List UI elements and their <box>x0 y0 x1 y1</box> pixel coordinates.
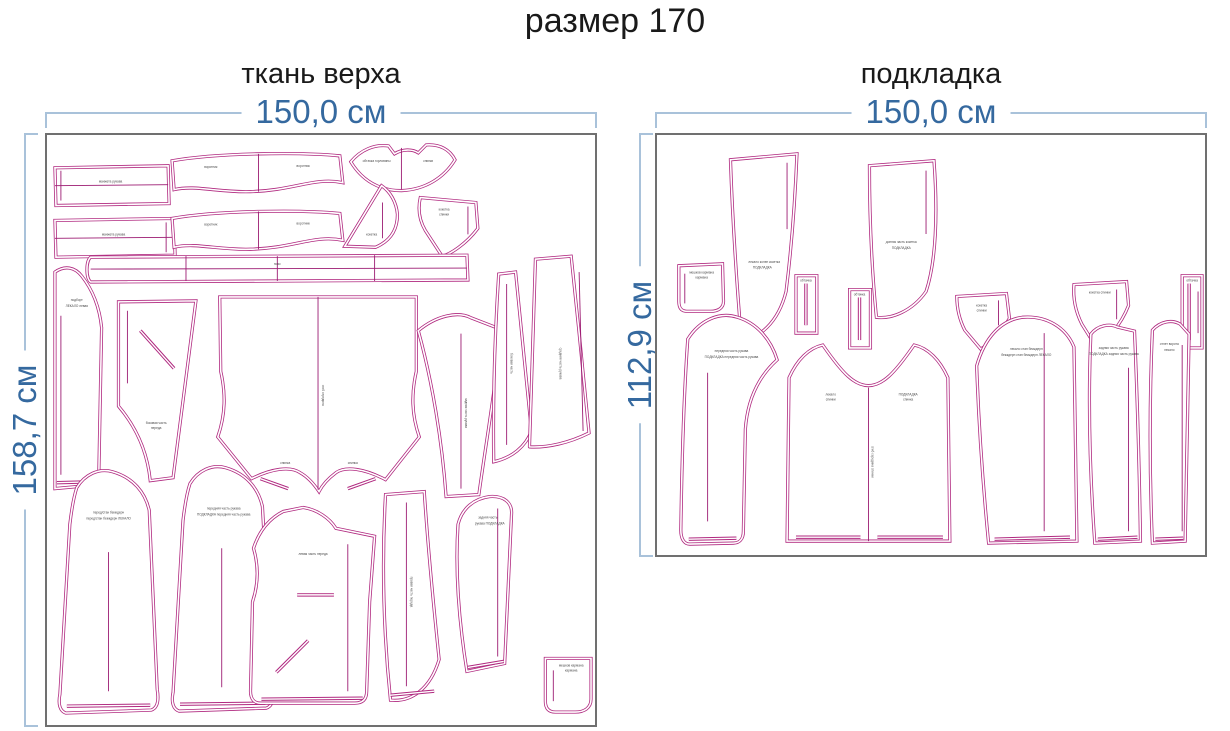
fabric-height-dim-tick-top <box>24 133 38 135</box>
front-left-panel-outline <box>251 507 375 703</box>
hood-gusset-piece: кокетка <box>345 186 398 248</box>
back-body-label: спинка <box>348 461 358 465</box>
pocket-piece-label: мешков кармана <box>689 271 714 275</box>
front-facing-label: подборт <box>71 298 83 302</box>
fabric-caption: ткань верха <box>45 58 597 91</box>
lining-height-label: 112,9 см <box>621 267 659 424</box>
sleeve-front-left-piece: перед/стан бекждернперед/стан бекждерн Л… <box>59 471 158 713</box>
pocket-bag-label: мешков кармана <box>559 663 584 667</box>
front-right-panel-piece: правая часть переда <box>384 492 440 701</box>
waistband-label: пояс <box>274 262 281 266</box>
layout-sheet: размер 170 ткань верха 150,0 см 158,7 см… <box>0 0 1230 731</box>
sleeve-front-lining-label: передняя часть рукава <box>715 349 749 353</box>
lining-width-label: 150,0 см <box>852 93 1011 131</box>
pocket-piece-piece: мешков карманакармана <box>679 264 724 312</box>
pocket-bag-label: кармана <box>565 668 578 672</box>
back-lining-label: сгиб середина спинки <box>870 446 874 478</box>
side-front-label: боковая часть <box>146 421 167 425</box>
front-facing-label: ЛЕКАЛО левая <box>66 304 89 308</box>
pocket-bag-piece: мешков карманакармана <box>545 658 591 712</box>
collar-outer-label: воротник <box>297 164 311 168</box>
side-lining-outline <box>1150 322 1189 544</box>
pocket-welt-1-label: обтачка <box>800 279 812 283</box>
front-lining-label: лекало стан бекждерн <box>1010 347 1043 351</box>
collar-inner-label: воротник <box>204 222 218 226</box>
back-yoke-small-label: кокетка <box>976 303 987 307</box>
front-lining-piece: лекало стан бекждернбекждерн стан бекжде… <box>977 317 1077 543</box>
back-yoke-shield-outline <box>419 198 478 257</box>
collar-inner-label: воротник <box>297 221 311 225</box>
back-yoke-shield-label: спинки <box>439 212 449 216</box>
back-lining-label: ПОДКЛАДКА <box>899 393 919 397</box>
lining-width-dim-tick-right <box>1205 112 1207 128</box>
fabric-height-dim-tick-bottom <box>24 725 38 727</box>
front-yoke-left-label: лекало колен кокетка <box>748 260 780 264</box>
lining-panel: мешков карманакарманалекало колен кокетк… <box>655 133 1207 557</box>
front-right-panel-label: правая часть переда <box>409 577 413 608</box>
front-yoke-right-label: донник часть кокетка <box>886 240 917 244</box>
sleeve-back-lining-label: задняя часть <box>478 515 498 519</box>
front-yoke-left-piece: лекало колен кокеткаПОДКЛАДКА <box>730 154 797 340</box>
side-lining-welt-core <box>1155 538 1183 539</box>
sleeve-middle-piece: средняя часть рукава <box>529 256 589 447</box>
side-lining-label: отлет ворота <box>1160 342 1179 346</box>
pocket-welt-2-label: обтачка <box>854 292 866 296</box>
sleeve-back-lining-label: ПОДКЛАДКА задняя часть рукава <box>1089 352 1139 356</box>
sleeve-back-lining-label: задняя часть рукава <box>1099 346 1129 350</box>
sleeve-front-left-welt-core <box>67 705 150 706</box>
sleeve-front-right-welt-core <box>180 703 265 704</box>
pocket-welt-1-piece: обтачка <box>796 276 817 333</box>
back-body-label: спинка <box>280 461 290 465</box>
back-lining-label: спинки <box>826 397 836 401</box>
sleeve-front-left-label: перед/стан бекждерн <box>93 510 124 514</box>
fabric-width-dim-tick-right <box>595 112 597 128</box>
fabric-panel: манжета рукаваманжета рукававоротникворо… <box>45 133 597 727</box>
back-body-welt-core <box>348 479 376 489</box>
front-yoke-right-piece: донник часть кокеткаПОДКЛАДКА <box>869 161 935 318</box>
front-left-panel-piece: левая часть переда <box>251 507 375 703</box>
side-front-piece: боковая частьпереда <box>118 301 195 481</box>
back-lining-piece: лекалоспинкиПОДКЛАДКАспинкасгиб середина… <box>787 345 950 541</box>
sleeve-front-lining-label: ПОДКЛАДКА передняя часть рукава <box>705 355 759 359</box>
sleeve-front-lining-welt-core <box>689 538 737 539</box>
side-panel-label: боковая часть <box>510 353 514 374</box>
pocket-welt-3-label: обтачка <box>1186 279 1198 283</box>
sleeve-middle-label: средняя часть рукава <box>558 348 562 380</box>
cuff-strip-1-label: манжета рукава <box>99 180 123 184</box>
back-lining-label: лекало <box>826 393 837 397</box>
back-yoke-shield-label: кокетка спинки <box>1089 290 1111 294</box>
front-lining-outline <box>977 317 1077 543</box>
side-lining-label: лекало <box>1164 348 1175 352</box>
collar-outer-piece: воротникворотник <box>172 154 343 192</box>
fabric-width-dim-tick-left <box>45 112 47 128</box>
fabric-layout-svg: манжета рукаваманжета рукававоротникворо… <box>47 135 595 725</box>
neck-facing-label: обтачка горловины <box>363 159 392 163</box>
sleeve-back-lining-piece: задняя частьрукава ПОДКЛАДКА <box>457 496 512 671</box>
sleeve-front-right-label: ПОДКЛАДКА передняя часть рукава <box>197 512 251 516</box>
sleeve-back-lining-piece: задняя часть рукаваПОДКЛАДКА задняя част… <box>1089 325 1141 543</box>
cuff-strip-2-piece: манжета рукава <box>55 218 175 257</box>
waistband-piece: пояс <box>87 255 468 282</box>
side-lining-piece: отлет вороталекало <box>1150 322 1189 544</box>
back-yoke-shield-label: кокетка <box>439 207 450 211</box>
back-body-welt-core <box>260 479 288 489</box>
back-body-outline <box>218 297 420 492</box>
collar-inner-piece: воротникворотник <box>172 211 343 249</box>
fabric-width-label: 150,0 см <box>242 93 401 131</box>
side-front-label: переда <box>151 426 162 430</box>
lining-height-dim-tick-top <box>639 133 653 135</box>
back-yoke-small-label: спинки <box>977 308 987 312</box>
lining-layout-svg: мешков карманакарманалекало колен кокетк… <box>657 135 1205 555</box>
neck-facing-outline <box>351 145 455 191</box>
back-body-piece: спинкаспинкасгиб середина <box>218 297 420 492</box>
front-left-panel-label: левая часть переда <box>299 552 328 556</box>
hood-gusset-label: кокетка <box>366 232 377 236</box>
front-facing-piece: подбортЛЕКАЛО левая <box>55 268 102 489</box>
neck-facing-piece: обтачка горловиныспинки <box>351 145 455 191</box>
sleeve-upper-back-outline <box>418 315 501 497</box>
pocket-welt-2-piece: обтачка <box>850 290 871 348</box>
cuff-strip-2-label: манжета рукава <box>102 232 126 236</box>
front-yoke-left-label: ПОДКЛАДКА <box>753 266 773 270</box>
cuff-strip-1-piece: манжета рукава <box>55 166 169 206</box>
sleeve-upper-back-piece: задняя часть рукава <box>418 315 501 497</box>
sleeve-upper-back-label: задняя часть рукава <box>464 398 468 428</box>
pocket-piece-label: кармана <box>695 276 708 280</box>
sleeve-front-lining-piece: передняя часть рукаваПОДКЛАДКА передняя … <box>681 315 777 544</box>
lining-height-dim-tick-bottom <box>639 555 653 557</box>
lining-caption: подкладка <box>655 58 1207 91</box>
lining-width-dim-tick-left <box>655 112 657 128</box>
collar-outer-label: воротник <box>204 165 218 169</box>
sleeve-front-left-label: перед/стан бекждерн ЛЕКАЛО <box>86 516 131 520</box>
sleeve-front-right-label: передняя часть рукава <box>207 506 241 510</box>
back-body-label: сгиб середина <box>321 385 325 406</box>
collar-outer-outline <box>172 154 343 192</box>
side-panel-piece: боковая часть <box>493 272 531 462</box>
back-lining-label: спинка <box>903 397 913 401</box>
back-yoke-shield-piece: кокеткаспинки <box>419 198 478 257</box>
collar-inner-outline <box>172 211 343 249</box>
sleeve-back-lining-outline <box>1089 325 1140 543</box>
front-lining-label: бекждерн стан бекждерн ЛЕКАЛО <box>1001 353 1052 357</box>
fabric-height-label: 158,7 см <box>6 351 44 510</box>
neck-facing-label: спинки <box>423 159 433 163</box>
front-yoke-right-label: ПОДКЛАДКА <box>892 246 912 250</box>
page-title: размер 170 <box>0 2 1230 41</box>
sleeve-back-lining-label: рукава ПОДКЛАДКА <box>475 521 506 525</box>
